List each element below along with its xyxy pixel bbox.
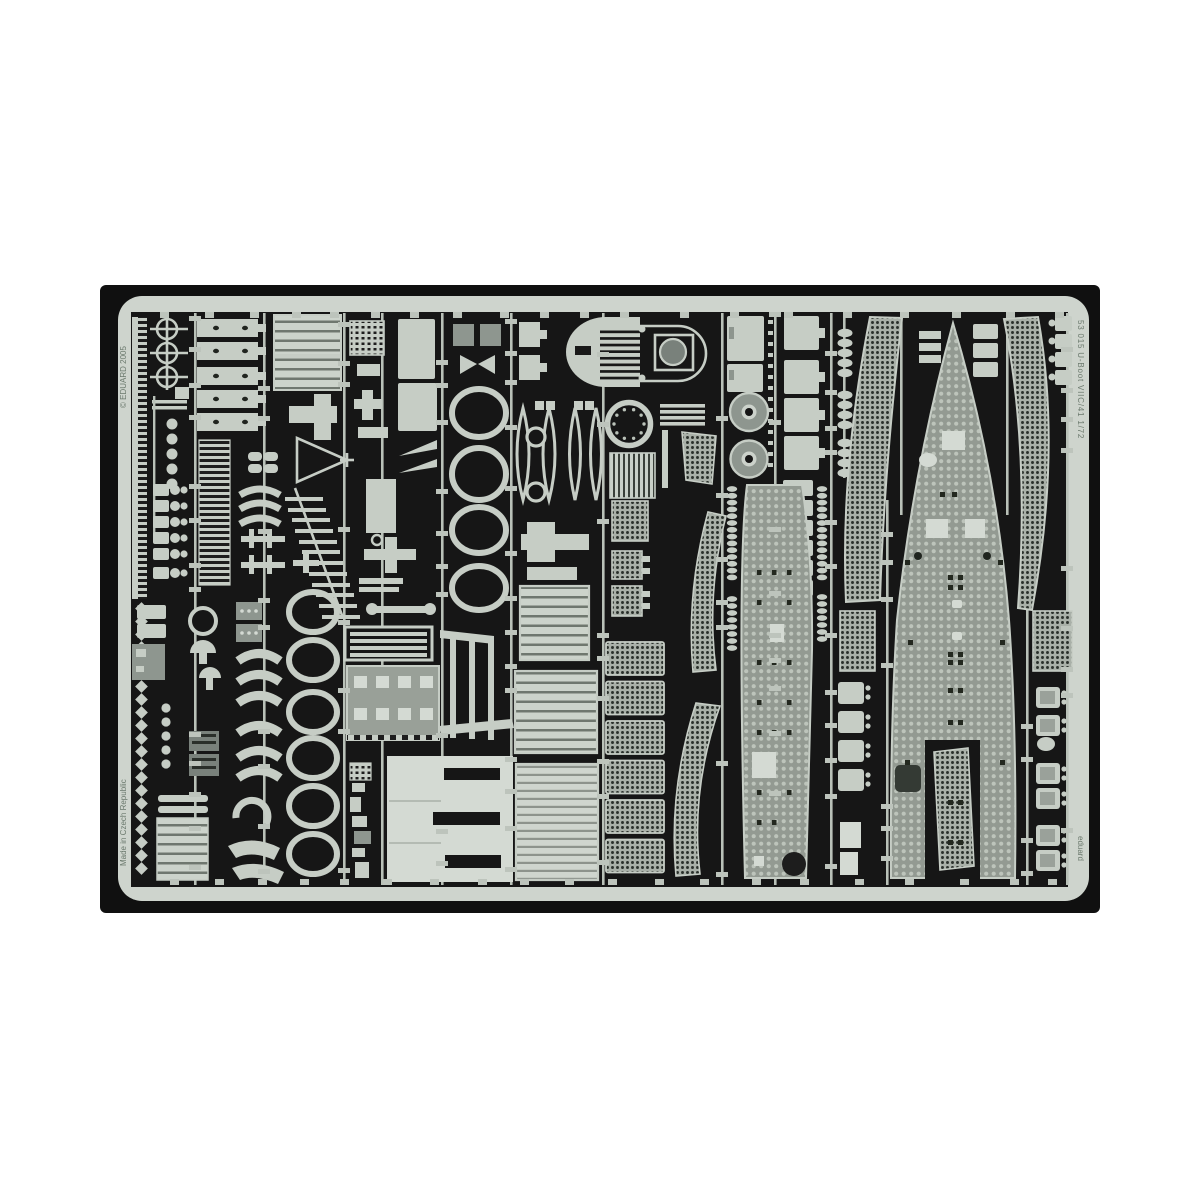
svg-text:eduard: eduard: [1076, 836, 1085, 861]
svg-text:Made in Czech Republic: Made in Czech Republic: [119, 779, 128, 866]
svg-text:© EDUARD 2005: © EDUARD 2005: [119, 346, 128, 408]
svg-text:53 015 U-Boot VIIC/41 1/72: 53 015 U-Boot VIIC/41 1/72: [1076, 320, 1085, 439]
